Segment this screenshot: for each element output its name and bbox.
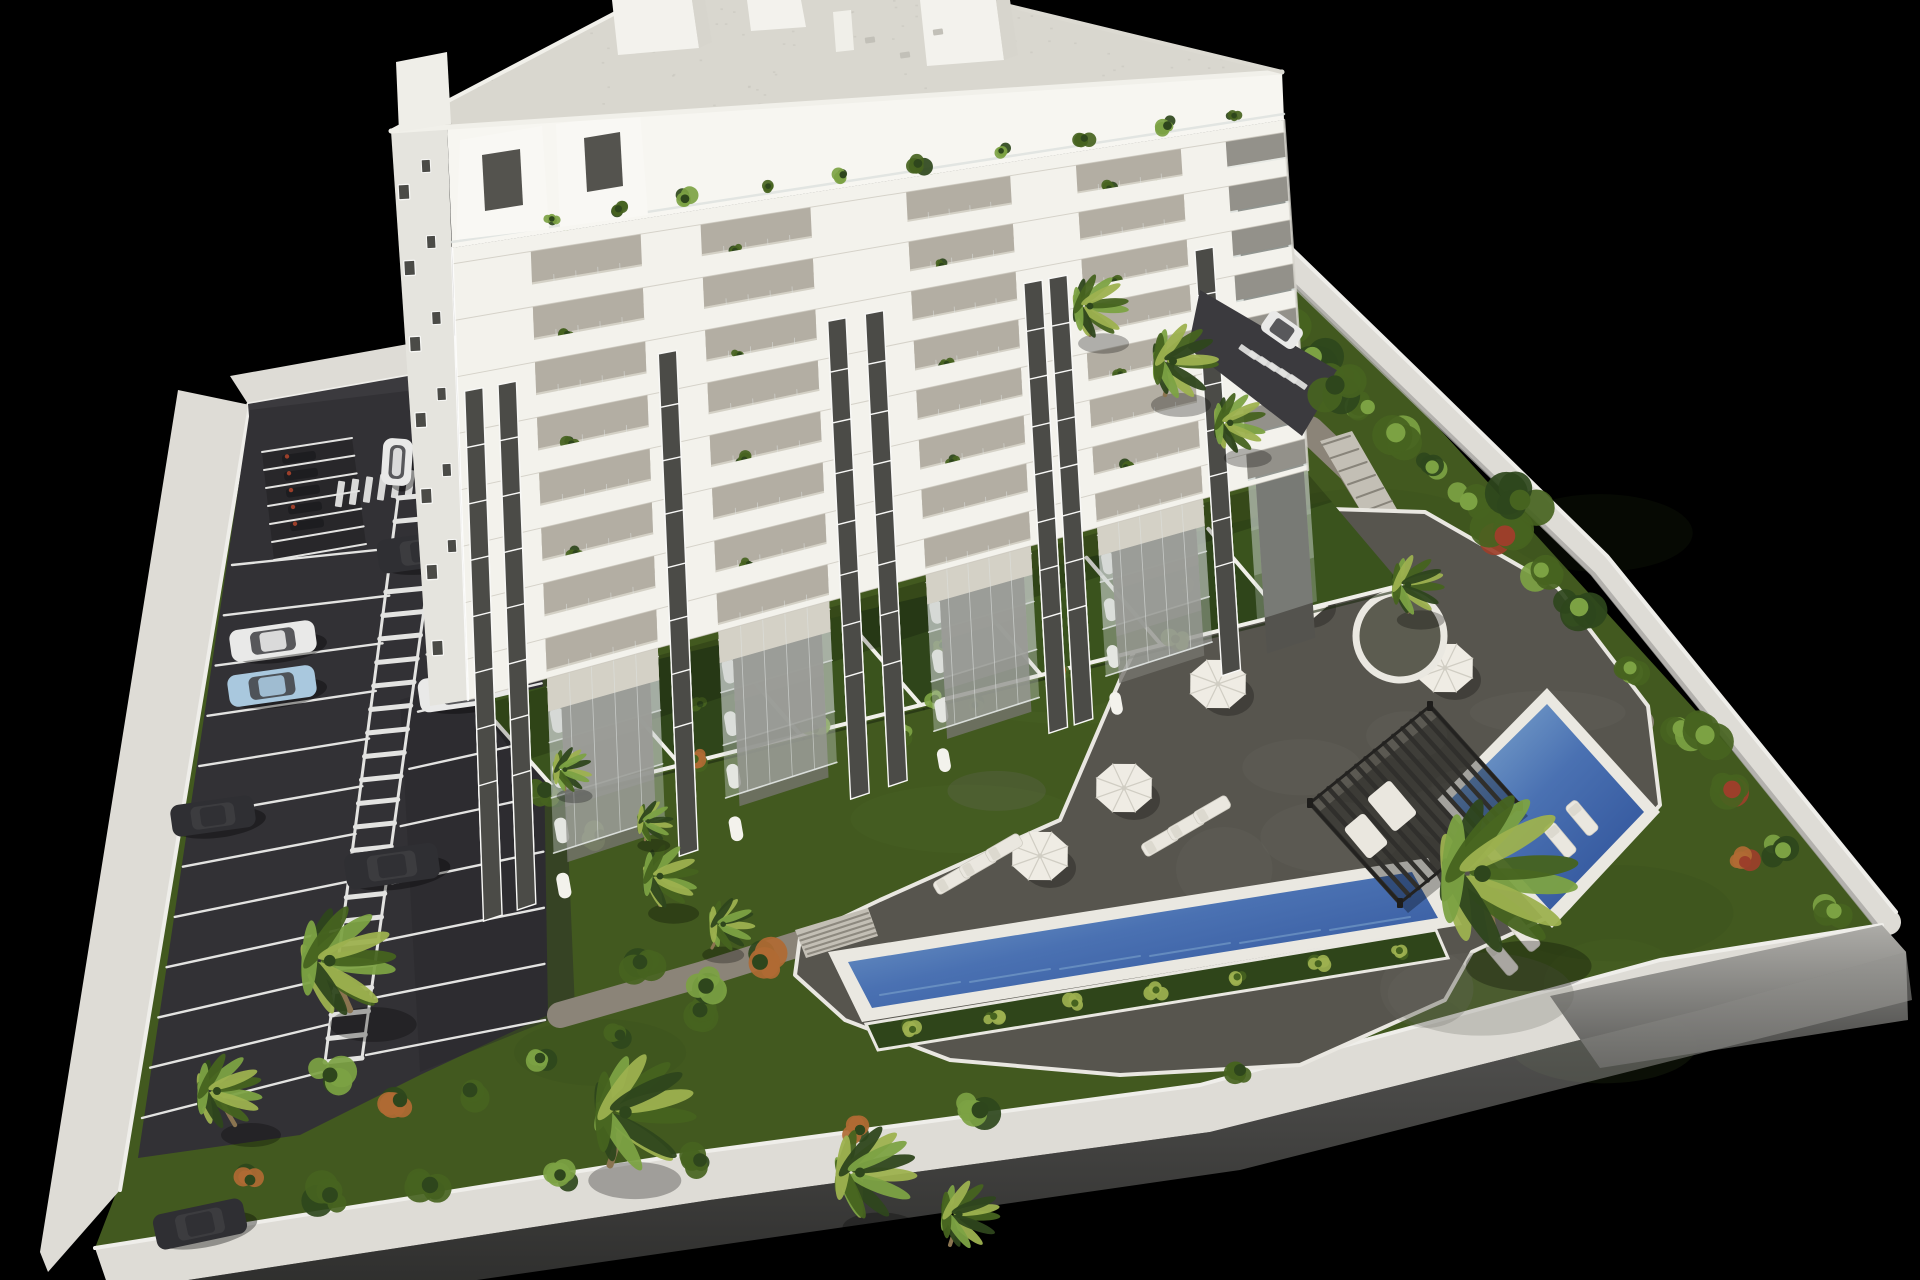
render-canvas	[0, 0, 1920, 1280]
site-plan-render: Aerial 3D architectural rendering of a w…	[0, 0, 1920, 1280]
palm-tree	[635, 799, 674, 852]
circular-planter	[1356, 592, 1444, 680]
